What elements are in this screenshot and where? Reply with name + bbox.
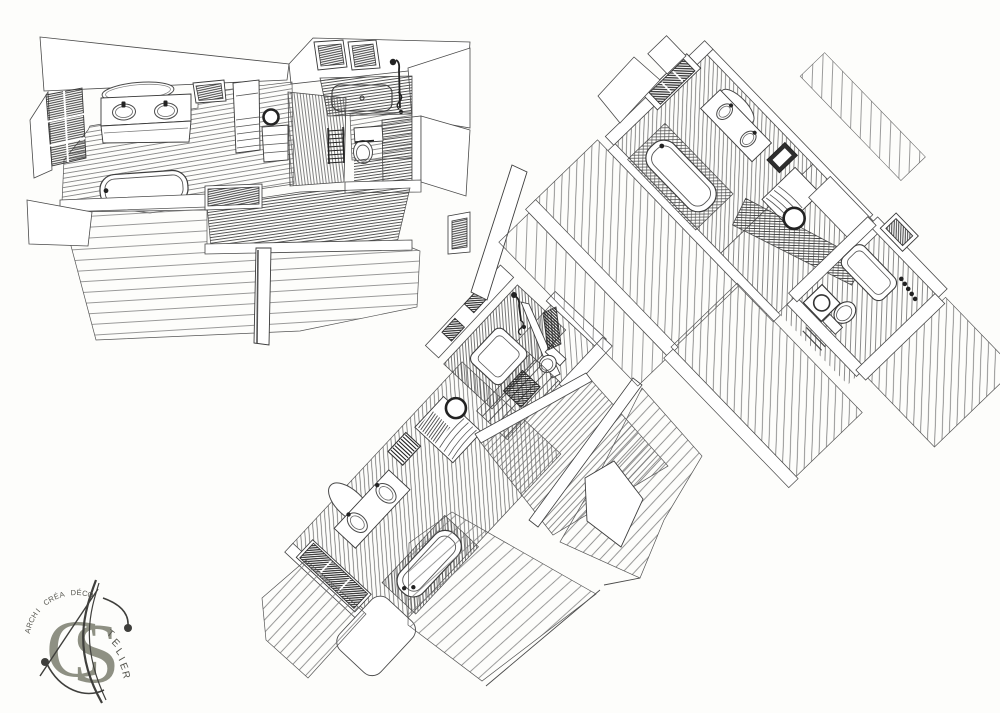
- svg-text:S: S: [72, 605, 120, 701]
